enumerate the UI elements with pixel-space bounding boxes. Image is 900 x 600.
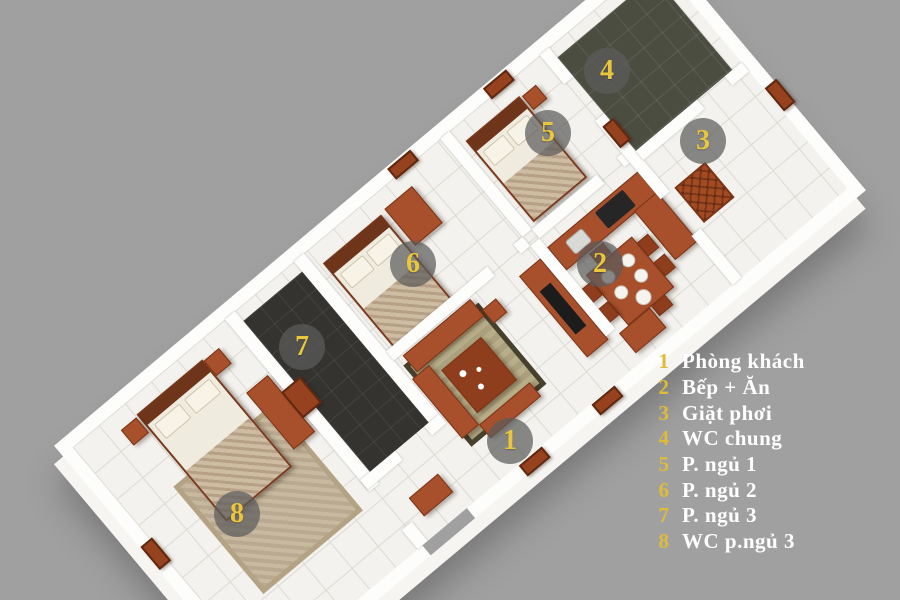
plate: [611, 282, 631, 302]
wall-decor: [483, 69, 515, 99]
legend-number: 1: [652, 349, 676, 374]
wall-decor: [592, 385, 624, 415]
legend-label: P. ngủ 2: [682, 478, 757, 503]
marker-room-5: 5: [525, 110, 571, 156]
shoe-cabinet: [409, 474, 454, 517]
legend-label: WC p.ngủ 3: [682, 529, 795, 554]
legend-row: 8 WC p.ngủ 3: [652, 529, 805, 555]
room-legend: 1 Phòng khách 2 Bếp + Ăn 3 Giặt phơi 4 W…: [652, 349, 805, 555]
legend-label: Giặt phơi: [682, 401, 772, 426]
tea-set: [458, 369, 468, 379]
legend-row: 2 Bếp + Ăn: [652, 375, 805, 401]
floor-plan-scene: 1 2 3 4 5 6 7 8 1 Phòng khách 2 Bếp + Ăn…: [0, 0, 900, 600]
marker-room-3: 3: [680, 118, 726, 164]
legend-row: 5 P. ngủ 1: [652, 452, 805, 478]
legend-number: 7: [652, 503, 676, 528]
marker-number: 8: [230, 498, 244, 530]
legend-row: 1 Phòng khách: [652, 349, 805, 375]
marker-room-7: 7: [279, 324, 325, 370]
wall: [691, 228, 741, 285]
legend-label: Bếp + Ăn: [682, 375, 770, 400]
legend-number: 3: [652, 401, 676, 426]
legend-row: 6 P. ngủ 2: [652, 477, 805, 503]
legend-number: 8: [652, 529, 676, 554]
marker-room-2: 2: [577, 241, 623, 287]
legend-label: WC chung: [682, 426, 782, 451]
legend-row: 4 WC chung: [652, 426, 805, 452]
legend-row: 3 Giặt phơi: [652, 400, 805, 426]
legend-number: 4: [652, 426, 676, 451]
plate: [631, 266, 651, 286]
doormat-laundry: [674, 162, 734, 223]
marker-number: 2: [593, 248, 607, 280]
legend-label: Phòng khách: [682, 349, 805, 374]
marker-room-4: 4: [584, 48, 630, 94]
marker-room-1: 1: [487, 418, 533, 464]
legend-number: 6: [652, 478, 676, 503]
marker-number: 7: [295, 331, 309, 363]
tea-set: [477, 382, 485, 390]
marker-number: 1: [503, 425, 517, 457]
legend-number: 5: [652, 452, 676, 477]
wall: [513, 237, 530, 254]
legend-label: P. ngủ 3: [682, 503, 757, 528]
cooktop: [595, 190, 636, 229]
legend-label: P. ngủ 1: [682, 452, 757, 477]
legend-row: 7 P. ngủ 3: [652, 503, 805, 529]
marker-room-8: 8: [214, 491, 260, 537]
entry-door-opening: [422, 508, 475, 555]
marker-number: 6: [406, 248, 420, 280]
wall-decor: [387, 150, 419, 180]
marker-number: 5: [541, 117, 555, 149]
marker-number: 4: [600, 55, 614, 87]
marker-room-6: 6: [390, 241, 436, 287]
wall-decor: [140, 537, 171, 570]
legend-number: 2: [652, 375, 676, 400]
wall-decor: [765, 79, 796, 112]
marker-number: 3: [696, 125, 710, 157]
tea-set: [475, 366, 482, 373]
